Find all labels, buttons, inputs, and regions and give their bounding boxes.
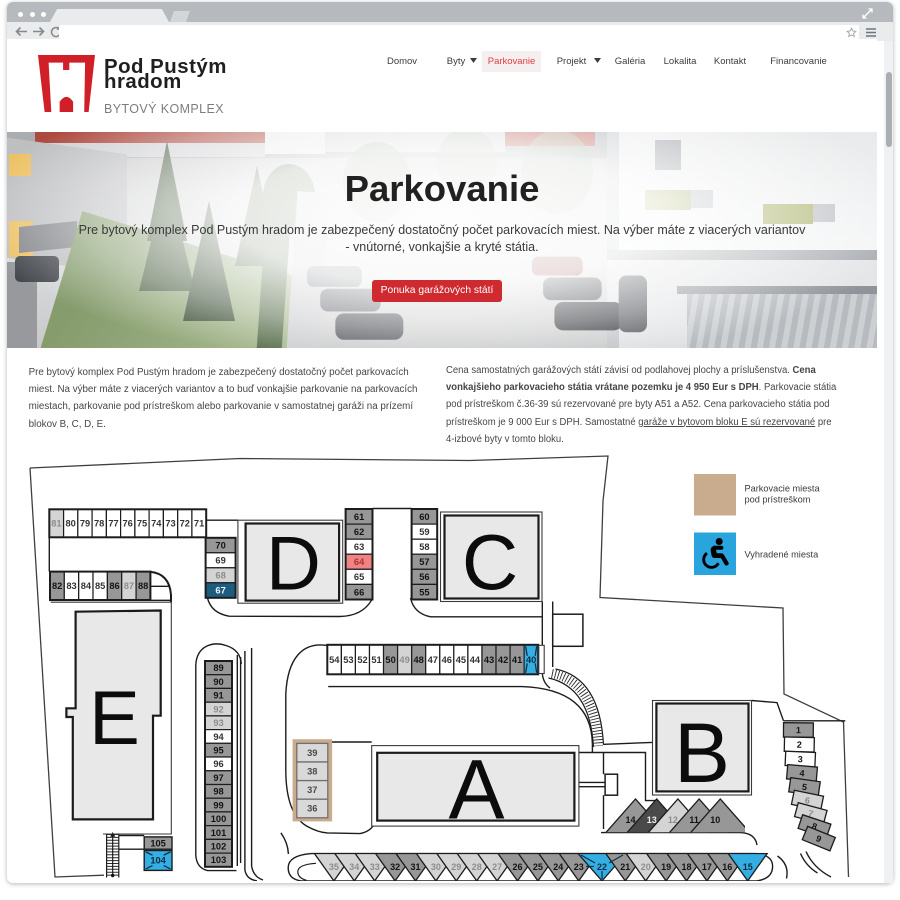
svg-text:64: 64 [354,557,365,567]
svg-text:83: 83 [66,581,76,591]
svg-text:3: 3 [798,754,803,764]
svg-text:10: 10 [710,815,720,825]
svg-text:95: 95 [213,746,223,756]
svg-text:14: 14 [625,815,635,825]
svg-text:25: 25 [533,862,543,872]
svg-text:19: 19 [661,862,671,872]
svg-text:89: 89 [213,663,223,673]
svg-text:98: 98 [213,787,223,797]
svg-text:56: 56 [419,572,429,582]
svg-text:62: 62 [354,527,364,537]
svg-text:85: 85 [95,581,105,591]
svg-text:60: 60 [419,512,429,522]
svg-text:91: 91 [213,691,223,701]
svg-text:11: 11 [689,815,699,825]
svg-text:48: 48 [414,655,424,665]
svg-text:47: 47 [428,655,438,665]
svg-text:76: 76 [123,519,133,529]
svg-text:72: 72 [180,519,190,529]
svg-text:38: 38 [307,766,317,776]
svg-text:46: 46 [442,655,452,665]
svg-text:90: 90 [213,677,223,687]
svg-text:68: 68 [215,571,225,581]
svg-text:105: 105 [150,838,166,848]
svg-text:73: 73 [165,519,175,529]
svg-text:Parkovacie miesta: Parkovacie miesta [745,484,821,494]
svg-text:A: A [448,743,504,837]
svg-text:29: 29 [451,862,461,872]
svg-text:37: 37 [307,785,317,795]
svg-text:16: 16 [722,862,732,872]
svg-text:41: 41 [512,655,522,665]
svg-text:28: 28 [472,862,482,872]
svg-text:45: 45 [456,655,466,665]
svg-text:84: 84 [81,581,92,591]
svg-text:18: 18 [681,862,691,872]
svg-text:4: 4 [799,768,805,778]
svg-text:40: 40 [526,655,536,665]
svg-text:59: 59 [419,527,429,537]
svg-text:12: 12 [668,815,678,825]
svg-text:Vyhradené miesta: Vyhradené miesta [745,550,820,560]
svg-text:34: 34 [349,862,359,872]
svg-text:54: 54 [329,655,340,665]
svg-text:81: 81 [51,519,61,529]
svg-text:57: 57 [419,557,429,567]
svg-text:103: 103 [211,855,227,865]
svg-text:53: 53 [343,655,353,665]
svg-text:pod prístreškom: pod prístreškom [745,495,811,505]
svg-text:77: 77 [108,519,118,529]
svg-text:50: 50 [385,655,395,665]
svg-text:82: 82 [52,581,62,591]
svg-text:49: 49 [399,655,409,665]
svg-text:26: 26 [512,862,522,872]
svg-text:1: 1 [796,725,801,735]
svg-text:E: E [89,676,140,761]
svg-text:42: 42 [498,655,508,665]
svg-text:30: 30 [431,862,441,872]
svg-text:99: 99 [213,800,223,810]
svg-text:23: 23 [574,862,584,872]
svg-text:52: 52 [357,655,367,665]
svg-text:22: 22 [597,862,607,872]
svg-text:24: 24 [553,862,563,872]
svg-text:78: 78 [94,519,104,529]
svg-text:87: 87 [124,581,134,591]
svg-text:80: 80 [66,519,76,529]
svg-text:86: 86 [109,581,119,591]
svg-text:61: 61 [354,512,364,522]
svg-text:71: 71 [194,519,204,529]
svg-text:31: 31 [410,862,420,872]
svg-text:35: 35 [329,862,339,872]
svg-text:20: 20 [641,862,651,872]
svg-text:93: 93 [213,718,223,728]
svg-text:51: 51 [371,655,381,665]
svg-text:63: 63 [354,542,364,552]
svg-text:33: 33 [370,862,380,872]
svg-text:55: 55 [419,587,429,597]
svg-text:B: B [674,706,730,800]
svg-text:36: 36 [307,804,317,814]
svg-text:96: 96 [213,759,223,769]
svg-text:13: 13 [647,815,657,825]
svg-text:21: 21 [620,862,630,872]
svg-text:94: 94 [213,732,224,742]
svg-text:104: 104 [150,856,166,866]
svg-text:58: 58 [419,542,429,552]
svg-text:39: 39 [307,748,317,758]
svg-text:66: 66 [354,587,364,597]
svg-text:17: 17 [702,862,712,872]
svg-text:2: 2 [797,740,802,750]
svg-text:101: 101 [211,828,227,838]
svg-text:92: 92 [213,704,223,714]
svg-text:27: 27 [492,862,502,872]
svg-text:100: 100 [211,814,227,824]
svg-text:70: 70 [215,541,225,551]
svg-text:88: 88 [138,581,148,591]
svg-text:C: C [462,518,518,606]
svg-text:67: 67 [215,586,225,596]
svg-text:79: 79 [80,519,90,529]
svg-text:97: 97 [213,773,223,783]
svg-text:15: 15 [743,862,753,872]
svg-text:74: 74 [151,519,162,529]
svg-text:69: 69 [215,556,225,566]
svg-text:32: 32 [390,862,400,872]
svg-text:102: 102 [211,842,227,852]
svg-text:65: 65 [354,572,364,582]
svg-text:44: 44 [470,655,481,665]
svg-text:D: D [266,522,321,607]
svg-text:43: 43 [484,655,494,665]
svg-text:75: 75 [137,519,147,529]
